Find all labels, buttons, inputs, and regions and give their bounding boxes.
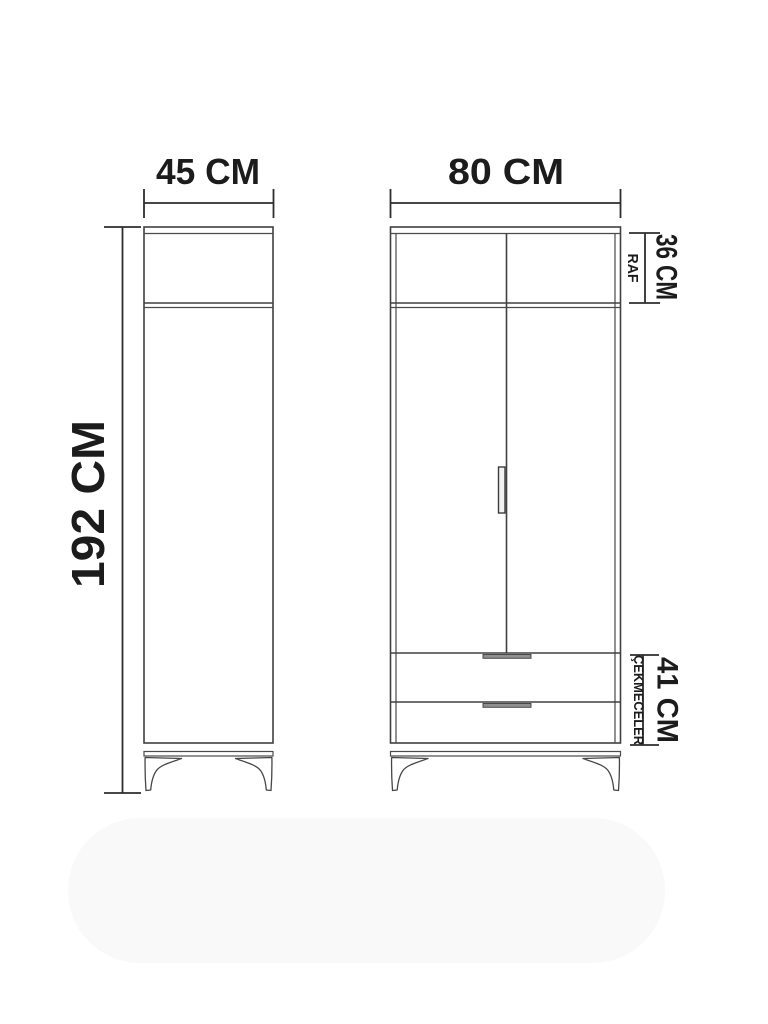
drawer-height-label: 41 CM bbox=[651, 657, 684, 743]
dim-drawer-section: ÇEKMECELER 41 CM bbox=[630, 655, 684, 745]
wardrobe-dimension-diagram: 45 CM 80 CM 192 CM RAF 36 CM bbox=[0, 0, 768, 1024]
front-left-leg bbox=[392, 758, 428, 791]
front-view bbox=[391, 227, 621, 791]
side-view-outline bbox=[144, 227, 273, 743]
height-label: 192 CM bbox=[62, 420, 114, 588]
drawer-handle-1 bbox=[483, 655, 531, 659]
side-left-leg bbox=[145, 758, 181, 791]
side-view bbox=[144, 227, 273, 791]
drawer-caption-label: ÇEKMECELER bbox=[631, 655, 647, 745]
shelf-height-label: 36 CM bbox=[650, 234, 683, 300]
side-right-leg bbox=[236, 758, 272, 791]
front-width-label: 80 CM bbox=[448, 151, 564, 192]
dim-front-width: 80 CM bbox=[391, 151, 621, 218]
side-width-label: 45 CM bbox=[156, 151, 260, 192]
dim-shelf-section: RAF 36 CM bbox=[624, 233, 683, 303]
door-handle bbox=[499, 467, 506, 513]
dim-side-width: 45 CM bbox=[144, 151, 274, 218]
front-base-rail bbox=[391, 752, 621, 757]
dim-height: 192 CM bbox=[62, 227, 141, 793]
side-base-rail bbox=[144, 752, 273, 757]
front-right-leg bbox=[583, 758, 619, 791]
floor-shadow bbox=[68, 818, 665, 963]
drawer-handle-2 bbox=[483, 704, 531, 708]
technical-drawing-page: 45 CM 80 CM 192 CM RAF 36 CM bbox=[0, 0, 768, 1024]
shelf-caption-label: RAF bbox=[624, 254, 641, 283]
